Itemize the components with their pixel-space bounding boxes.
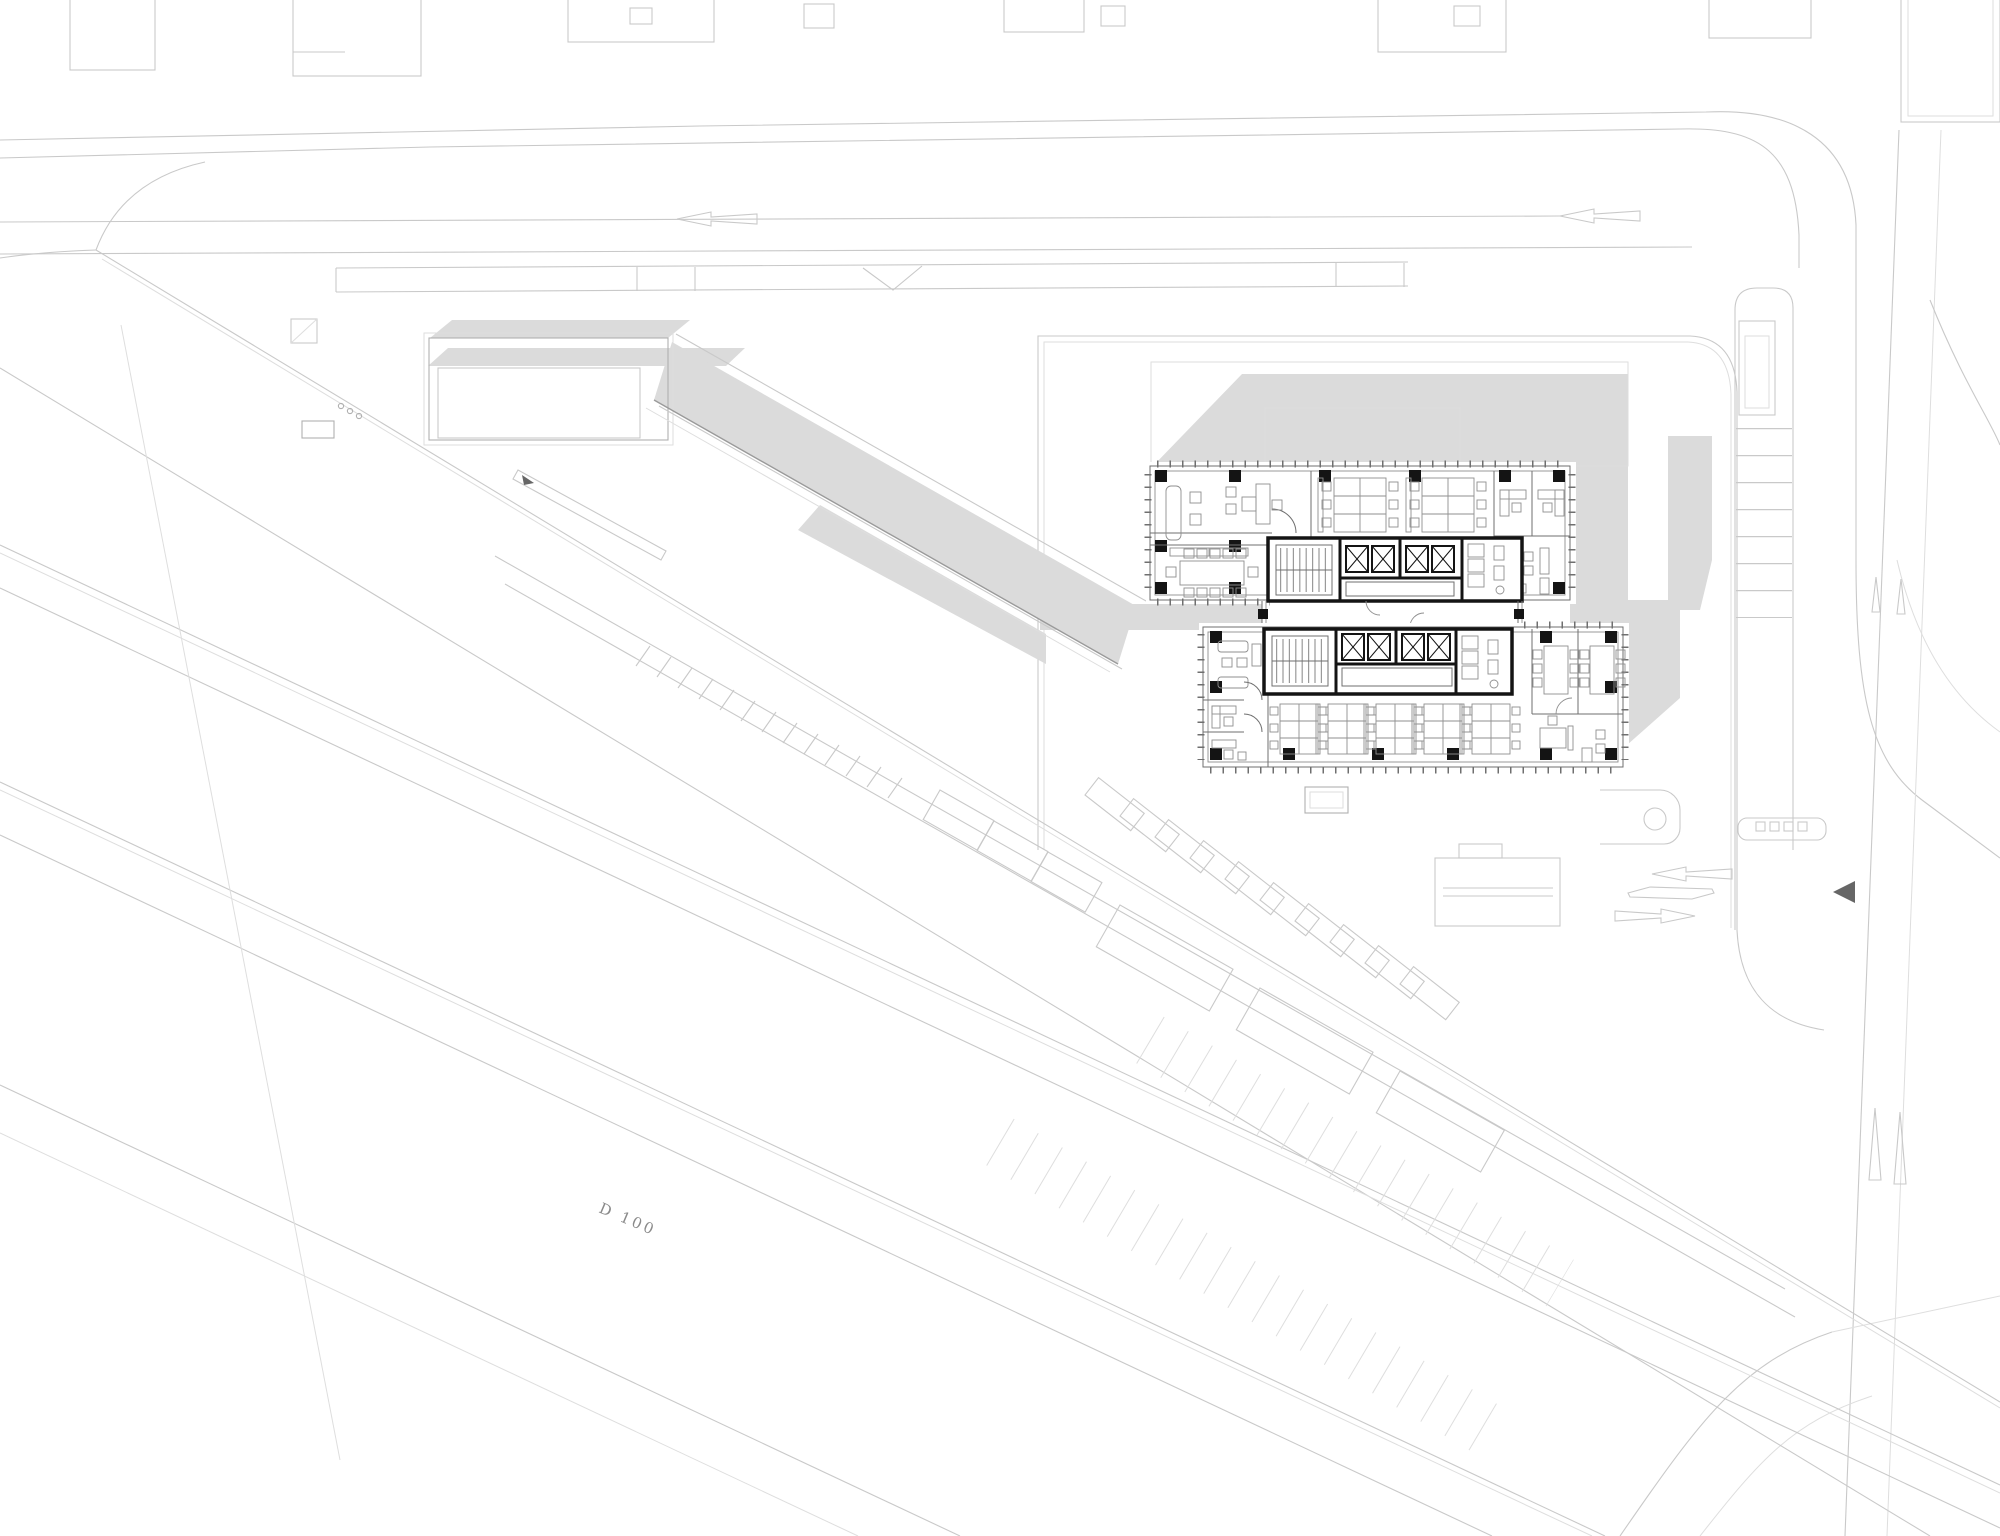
sawtooth-parking <box>1085 778 1459 1020</box>
site-plan-svg: D 100 <box>0 0 2000 1536</box>
crosswalk-arrow-icon <box>1894 1112 1906 1184</box>
road-marking-label: D 100 <box>596 1199 659 1239</box>
crosswalk-arrow-icon <box>1869 1108 1881 1180</box>
crosswalk-arrow-icon <box>1872 577 1880 612</box>
dropoff-out-arrow-icon <box>1615 909 1695 923</box>
road-marking-text: D 100 <box>596 1199 659 1239</box>
street-parking-bay <box>1735 288 1906 1184</box>
site-plan-canvas: D 100 <box>0 0 2000 1536</box>
ramp-chevrons <box>636 646 902 798</box>
north-point-icon <box>522 475 534 485</box>
core-upper <box>1268 538 1522 601</box>
building-upper-wing <box>1146 462 1576 604</box>
tree-circle <box>1644 808 1666 830</box>
retaining-wall-line <box>654 400 1118 664</box>
median-band <box>336 262 1408 292</box>
parking-stall-rows <box>1000 1040 1560 1440</box>
dropoff-in-arrow-icon <box>1652 867 1732 881</box>
merge-chevron-icon <box>863 266 922 290</box>
entrance-grate <box>1738 818 1826 840</box>
entry-marker-icon <box>1833 881 1855 903</box>
tower-shadow-north <box>1153 374 1628 466</box>
neighbour-buildings <box>70 0 2000 122</box>
east-arrow-icon <box>1560 209 1640 223</box>
south-site-elements <box>1305 787 1855 926</box>
core-lower <box>1264 629 1512 694</box>
building-lower-wing <box>1199 623 1629 773</box>
traffic-island <box>1628 887 1714 899</box>
